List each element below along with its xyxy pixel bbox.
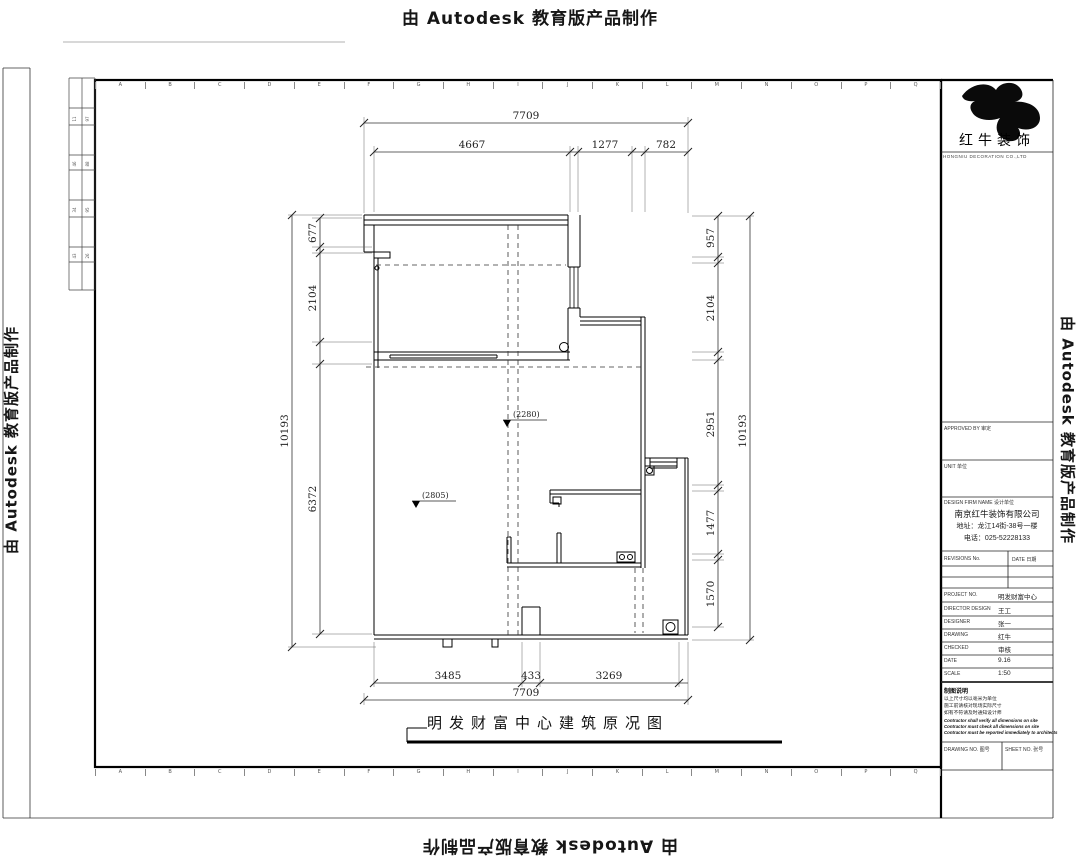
dim-right-4: 1477 (705, 510, 717, 537)
dim-right-1: 957 (705, 228, 717, 248)
dim-bottom-1: 3485 (435, 670, 462, 682)
level-markers-group: (2280) (2805) (412, 410, 547, 508)
grid-letter: M (692, 769, 742, 776)
svg-text:46: 46 (72, 161, 77, 167)
windows-group (570, 267, 578, 308)
dim-left-1: 677 (307, 223, 319, 243)
director-label: DIRECTOR DESIGN (944, 606, 991, 612)
dim-bottom-3: 3269 (596, 670, 623, 682)
revisions-label: REVISIONS No. (944, 556, 980, 562)
grid-letter: J (543, 82, 593, 89)
note-en-2: Contractor must check all dimensions on … (944, 724, 1039, 729)
designer-value: 张一 (998, 618, 1011, 628)
firm-address: 地址：龙江14街-38号一楼 (941, 521, 1053, 531)
dim-bottom-overall: 7709 (513, 687, 540, 699)
grid-letter: C (195, 82, 245, 89)
grid-letter: H (444, 769, 494, 776)
sheet-borders (3, 42, 1053, 818)
grid-letter: N (742, 82, 792, 89)
director-value: 王工 (998, 605, 1011, 615)
dimension-texts: 7709 4667 1277 782 3485 433 3269 7709 10… (279, 110, 749, 699)
sheet-no-label: SHEET NO. 张号 (1005, 746, 1043, 753)
grid-letter: E (295, 82, 345, 89)
grid-letter: Q (891, 769, 941, 776)
firm-phone: 电话：025-52228133 (941, 533, 1053, 543)
dim-top-1: 4667 (459, 139, 486, 151)
grid-letter: E (295, 769, 345, 776)
drawing-no-label: DRAWING NO. 图号 (944, 746, 990, 753)
grid-letter: P (842, 82, 892, 89)
floorplan-canvas: 11 97 46 88 34 95 43 26 (0, 0, 1080, 864)
grid-letter: L (643, 82, 693, 89)
svg-text:34: 34 (72, 207, 77, 213)
date-column-label: DATE 日期 (1012, 556, 1036, 563)
grid-letter: D (245, 82, 295, 89)
note-cn-1: 以上尺寸均以毫米为单位 (944, 695, 997, 702)
dim-bottom-2: 433 (521, 670, 541, 682)
note-en-3: Contractor must be reported immediately … (944, 730, 1057, 735)
grid-letters-top: ABCDEFGHIJKLMNOPQ (95, 82, 941, 89)
scale-value: 1:50 (998, 670, 1011, 677)
note-cn-2: 施工前请核对现场实际尺寸 (944, 702, 1002, 709)
brand-subtitle: HONGNIU DECORATION CO.,LTD (943, 154, 1027, 159)
design-firm-label: DESIGN FIRM NAME 设计单位 (944, 499, 1014, 506)
side-table-cells: 11 97 46 88 34 95 43 26 (72, 116, 90, 259)
plan-title: 明发财富中心建筑原况图 (427, 712, 669, 733)
grid-letter: Q (891, 82, 941, 89)
grid-letter: C (195, 769, 245, 776)
grid-letter: G (394, 82, 444, 89)
grid-letter: A (95, 82, 146, 89)
grid-letter: F (345, 82, 395, 89)
dim-top-overall: 7709 (513, 110, 540, 122)
dim-right-2: 2104 (705, 294, 717, 321)
grid-letter: M (692, 82, 742, 89)
brand-name: 红牛装饰 (942, 130, 1052, 150)
grid-letter: F (345, 769, 395, 776)
approved-by-label: APPROVED BY 审定 (944, 425, 991, 432)
dim-left-2: 2104 (307, 284, 319, 311)
checked-label: CHECKED (944, 645, 968, 651)
grid-letter: D (245, 769, 295, 776)
grid-letter: B (146, 82, 196, 89)
grid-letter: G (394, 769, 444, 776)
project-label: PROJECT NO. (944, 592, 978, 598)
svg-text:11: 11 (72, 116, 77, 122)
cad-sheet: 由 Autodesk 教育版产品制作 由 Autodesk 教育版产品制作 由 … (0, 0, 1080, 864)
level-value-1: (2280) (513, 410, 540, 419)
grid-letter: K (593, 769, 643, 776)
grid-letter: I (494, 769, 544, 776)
grid-letter: A (95, 769, 146, 776)
project-value: 明发财富中心 (998, 591, 1037, 601)
grid-letter: J (543, 769, 593, 776)
grid-letter: O (792, 82, 842, 89)
grid-letter: N (742, 769, 792, 776)
date-row-label: DATE (944, 658, 957, 664)
grid-letter: L (643, 769, 693, 776)
grid-letter: K (593, 82, 643, 89)
grid-letter: O (792, 769, 842, 776)
grid-letter: H (444, 82, 494, 89)
checked-value: 审核 (998, 644, 1011, 654)
drawing-label: DRAWING (944, 632, 968, 638)
svg-text:95: 95 (85, 207, 90, 213)
date-row-value: 9.16 (998, 657, 1011, 664)
dashed-lines-group (366, 225, 643, 635)
walls-group (364, 215, 688, 647)
svg-text:97: 97 (85, 116, 90, 122)
note-en-1: Contractor shall verify all dimensions o… (944, 718, 1038, 723)
level-value-2: (2805) (422, 491, 449, 500)
grid-letter: P (842, 769, 892, 776)
dim-left-3: 6372 (307, 486, 319, 513)
scale-label: SCALE (944, 671, 960, 677)
dim-right-5: 1570 (705, 581, 717, 608)
note-cn-3: 如有不符请及时通知设计师 (944, 709, 1002, 716)
dim-left-overall: 10193 (279, 414, 291, 447)
svg-text:26: 26 (85, 253, 90, 259)
dim-top-2: 1277 (592, 139, 619, 151)
notes-title: 制图说明 (944, 686, 968, 695)
designer-label: DESIGNER (944, 619, 970, 625)
unit-label: UNIT 单位 (944, 463, 967, 470)
svg-text:88: 88 (85, 161, 90, 167)
dim-right-3: 2951 (705, 411, 717, 438)
drawing-value: 红牛 (998, 631, 1011, 641)
dim-right-overall: 10193 (737, 414, 749, 447)
drawing-frame (95, 80, 1053, 818)
grid-letter: B (146, 769, 196, 776)
svg-text:43: 43 (72, 253, 77, 259)
grid-letters-bottom: ABCDEFGHIJKLMNOPQ (95, 769, 941, 776)
dim-top-3: 782 (656, 139, 676, 151)
grid-letter: I (494, 82, 544, 89)
firm-name: 南京红牛装饰有限公司 (941, 508, 1053, 520)
